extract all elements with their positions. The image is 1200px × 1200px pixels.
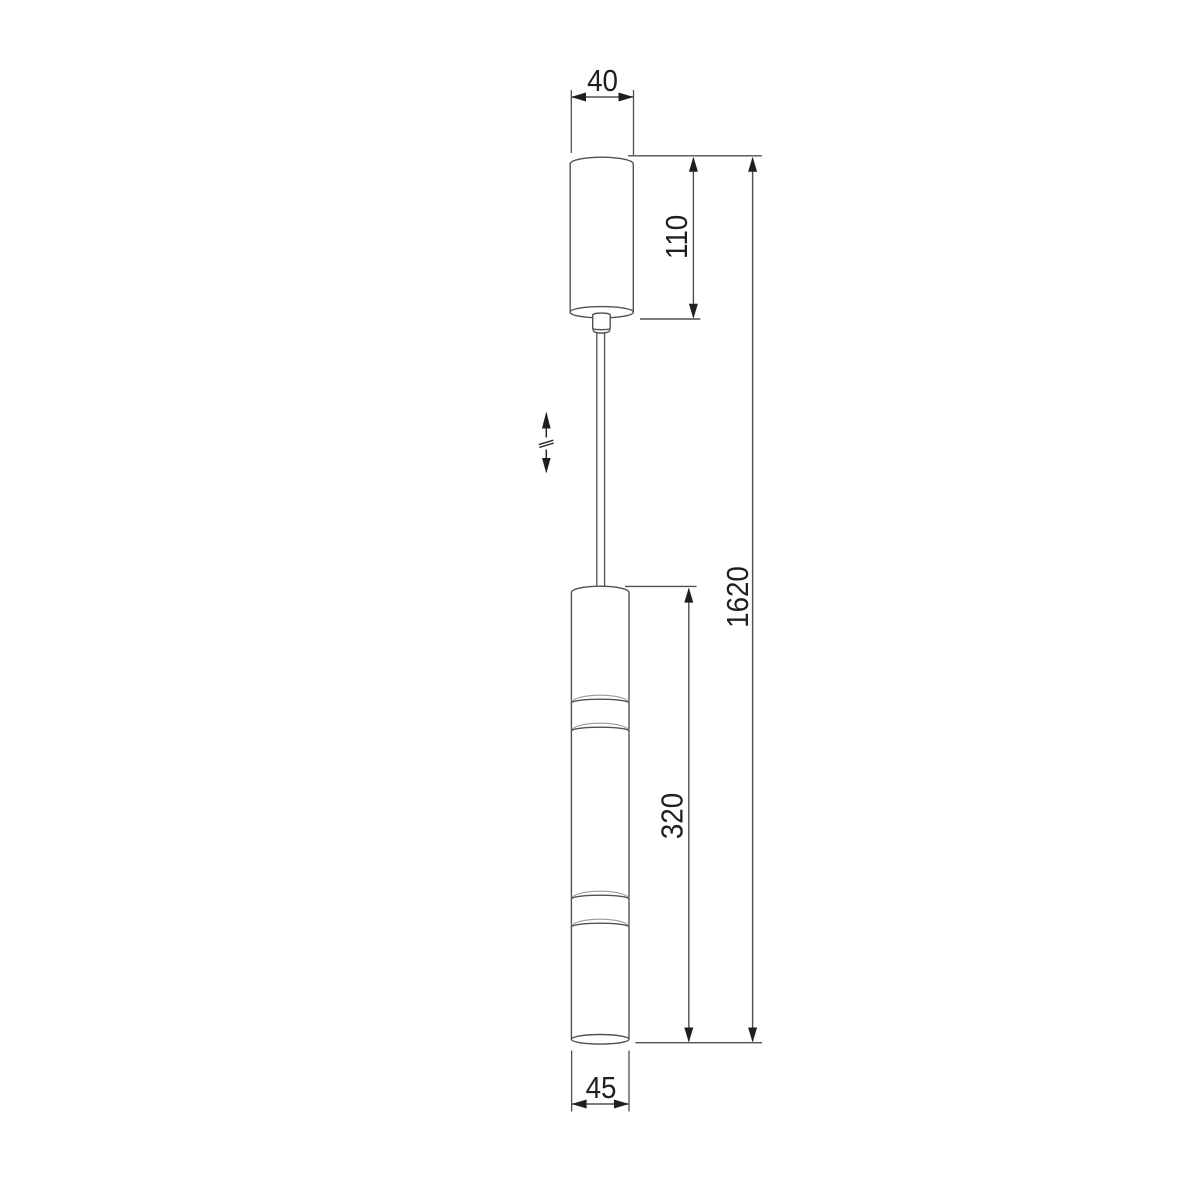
svg-text:40: 40: [587, 65, 618, 98]
svg-text:1620: 1620: [722, 566, 755, 628]
svg-text:45: 45: [586, 1072, 617, 1105]
svg-text:320: 320: [656, 793, 689, 839]
svg-text:110: 110: [661, 215, 694, 259]
